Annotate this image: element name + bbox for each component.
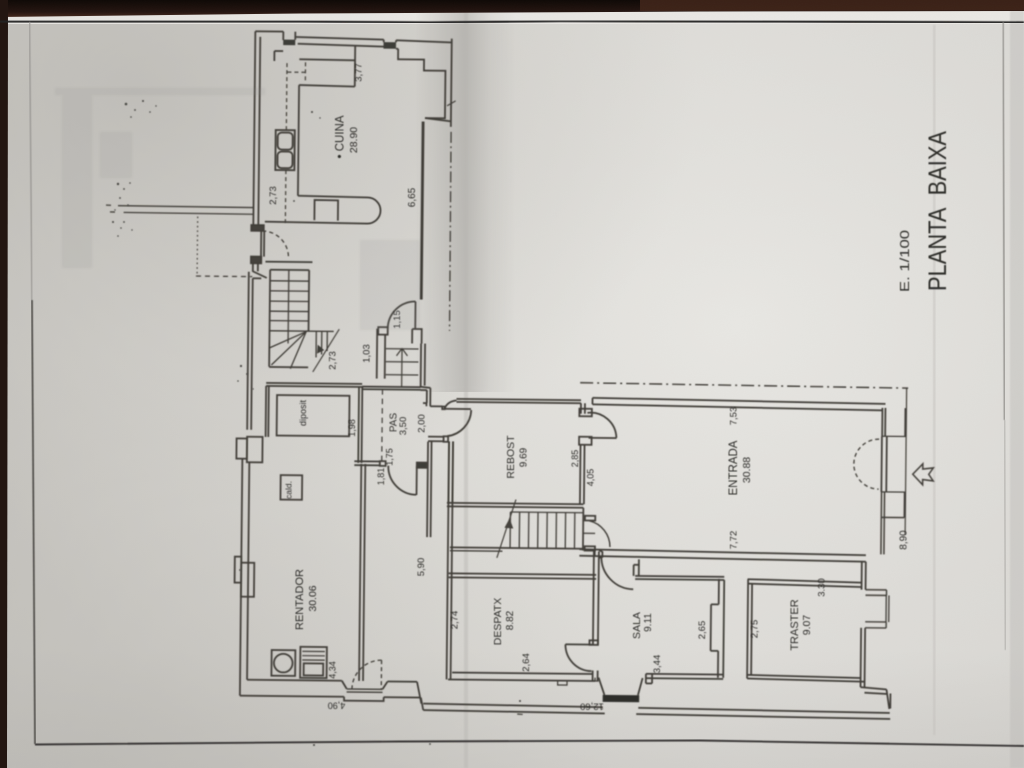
svg-text:2,73: 2,73 (328, 351, 339, 370)
svg-text:DESPATX: DESPATX (492, 598, 504, 645)
svg-text:1,03: 1,03 (362, 344, 373, 363)
svg-text:3.30: 3.30 (817, 578, 828, 597)
svg-text:2,74: 2,74 (450, 611, 461, 630)
svg-text:• CUINA: • CUINA (335, 115, 347, 158)
svg-text:RENTADOR: RENTADOR (294, 569, 306, 630)
svg-text:cald.: cald. (284, 481, 294, 499)
svg-text:2,65: 2,65 (697, 621, 708, 640)
svg-text:6,65: 6,65 (407, 187, 418, 207)
svg-text:1,81: 1,81 (376, 468, 386, 486)
svg-text:2,00: 2,00 (417, 414, 428, 433)
svg-text:E. 1/100: E. 1/100 (897, 230, 912, 292)
svg-text:2,85: 2,85 (570, 450, 580, 468)
svg-text:PLANTA BAIXA: PLANTA BAIXA (924, 131, 952, 291)
svg-text:30.88: 30.88 (741, 457, 753, 483)
svg-text:3,44: 3,44 (652, 655, 663, 674)
svg-text:4,05: 4,05 (586, 469, 596, 487)
svg-text:REBOST: REBOST (505, 435, 517, 479)
svg-text:7,53: 7,53 (729, 407, 740, 426)
svg-text:4,90: 4,90 (328, 701, 346, 711)
svg-text:8.82: 8.82 (505, 610, 516, 630)
svg-text:2,64: 2,64 (521, 653, 532, 672)
svg-text:8,90: 8,90 (899, 530, 910, 550)
svg-text:30.06: 30.06 (307, 585, 319, 611)
svg-text:3,50: 3,50 (398, 417, 409, 436)
svg-text:2,73: 2,73 (268, 186, 279, 205)
svg-text:28.90: 28.90 (348, 127, 360, 153)
svg-text:9.69: 9.69 (519, 447, 530, 467)
svg-text:TRASTER: TRASTER (789, 599, 801, 650)
svg-text:SALA: SALA (631, 612, 643, 639)
svg-text:diposit: diposit (298, 399, 308, 426)
svg-text:3,77: 3,77 (354, 63, 365, 82)
svg-text:1,98: 1,98 (347, 419, 357, 437)
svg-text:12,60: 12,60 (580, 701, 604, 712)
svg-text:4,34: 4,34 (328, 661, 338, 679)
svg-text:5,90: 5,90 (416, 558, 427, 577)
svg-text:2,75: 2,75 (750, 620, 761, 639)
svg-text:9.07: 9.07 (801, 615, 813, 636)
svg-text:9.11: 9.11 (643, 613, 654, 632)
svg-text:ENTRADA: ENTRADA (728, 440, 740, 495)
svg-text:7,72: 7,72 (729, 531, 740, 550)
svg-text:1,75: 1,75 (385, 448, 395, 466)
